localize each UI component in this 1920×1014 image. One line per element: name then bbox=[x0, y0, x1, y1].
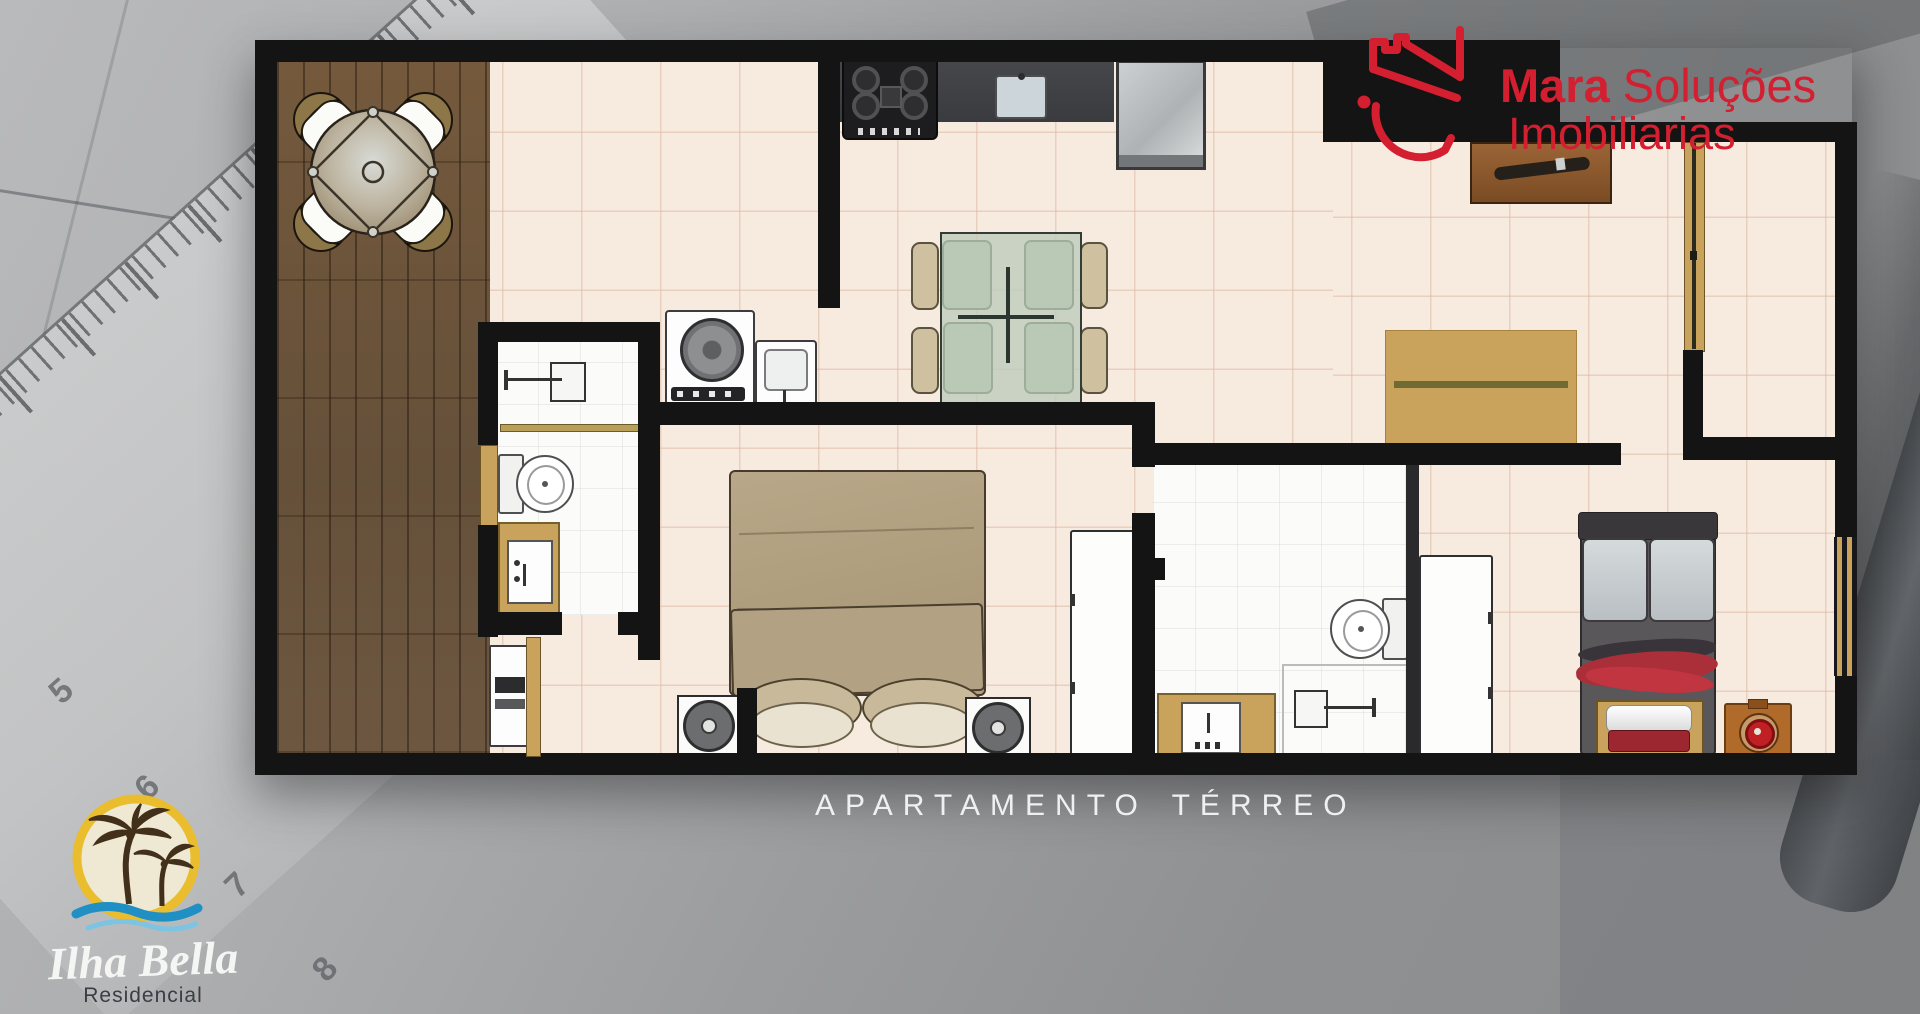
brand-word1: Soluções bbox=[1623, 59, 1816, 112]
folded-blanket-white bbox=[1606, 705, 1692, 733]
toilet-bowl bbox=[1330, 599, 1390, 659]
ilha-bella-subtitle: Residencial bbox=[8, 984, 278, 1008]
shower-arm-cap bbox=[1372, 698, 1376, 717]
faucet-icon bbox=[1207, 713, 1210, 733]
wardrobe-handle bbox=[1070, 682, 1075, 694]
plan-caption: APARTAMENTO TÉRREO bbox=[815, 789, 1357, 823]
wardrobe-handle bbox=[1070, 594, 1075, 606]
shower-head-icon bbox=[1294, 690, 1328, 728]
screenshot-root: 5 6 7 8 bbox=[0, 0, 1920, 1014]
faucet-icon bbox=[514, 576, 520, 582]
toilet-1 bbox=[498, 452, 574, 514]
nightstand-lamp bbox=[683, 700, 735, 752]
fridge-base bbox=[1119, 155, 1203, 167]
burner bbox=[900, 92, 928, 120]
shower-head-icon bbox=[550, 362, 586, 402]
tub-basin bbox=[764, 349, 808, 391]
hall-door-knob bbox=[1690, 251, 1697, 260]
brand-word2: Imobiliarias bbox=[1508, 108, 1736, 160]
mara-house-icon bbox=[1348, 22, 1498, 162]
window-pane bbox=[1837, 537, 1842, 676]
patio-table-set bbox=[285, 84, 461, 260]
rug-stripe bbox=[1394, 381, 1568, 388]
vanity-1 bbox=[498, 522, 560, 618]
bedside-chest bbox=[1724, 703, 1792, 759]
brand-name-line: Mara Soluções bbox=[1500, 58, 1816, 113]
wall-bedroom2-top bbox=[1697, 437, 1835, 460]
photo-shadow bbox=[1560, 760, 1920, 1014]
vanity-sink bbox=[507, 540, 553, 604]
ruler-digit: 8 bbox=[305, 949, 347, 989]
wall-bedroom1-step bbox=[1132, 425, 1155, 467]
shower-partition bbox=[500, 424, 640, 432]
wall-bedroom1-top bbox=[650, 402, 1155, 425]
shower-arm bbox=[1324, 706, 1374, 709]
knob-strip bbox=[858, 128, 920, 135]
washing-machine bbox=[665, 310, 755, 406]
shower-2 bbox=[1282, 664, 1408, 756]
folded-blanket-red bbox=[1608, 730, 1690, 752]
brand-name: Mara bbox=[1500, 59, 1610, 112]
single-bed bbox=[1578, 512, 1718, 757]
duvet-crease bbox=[739, 527, 974, 535]
bed-pillow bbox=[1582, 538, 1648, 622]
toilet-bowl bbox=[516, 455, 574, 513]
cooktop bbox=[842, 56, 938, 140]
wall-bath1-bottom-b bbox=[618, 612, 660, 635]
window-right bbox=[1834, 537, 1857, 676]
laundry-tub bbox=[755, 340, 817, 406]
table-cross-h bbox=[958, 315, 1054, 319]
chest-notch bbox=[1748, 699, 1768, 709]
burner-grate bbox=[880, 86, 902, 108]
bed-headboard bbox=[1578, 512, 1718, 540]
vanity-2 bbox=[1157, 693, 1276, 759]
wall-right-upper bbox=[1835, 122, 1857, 537]
wall-bath1-top bbox=[478, 322, 660, 342]
foot-bench bbox=[1596, 700, 1704, 759]
ilha-bella-title: Ilha Bella bbox=[7, 929, 279, 991]
shower-arm-cap bbox=[504, 370, 508, 390]
bed-pillow bbox=[870, 702, 974, 748]
dining-chair-arm bbox=[911, 242, 939, 310]
rug bbox=[1385, 330, 1577, 444]
entry-door bbox=[526, 637, 541, 757]
wall-corridor-stub bbox=[737, 688, 757, 753]
shower-1 bbox=[500, 358, 640, 408]
lamp-dot bbox=[1754, 728, 1761, 735]
wall-bath1-bottom-a bbox=[478, 612, 562, 635]
burner bbox=[852, 66, 880, 94]
nightstand-lamp bbox=[972, 702, 1024, 754]
faucet-icon bbox=[514, 560, 520, 566]
dining-chair-arm bbox=[911, 327, 939, 394]
ilha-bella-logo: Ilha Bella Residencial bbox=[8, 788, 278, 1014]
tub-drain bbox=[783, 390, 786, 402]
bed-pillow bbox=[1649, 538, 1715, 622]
refrigerator bbox=[1116, 60, 1206, 170]
washer-drum bbox=[680, 318, 744, 382]
wall-hall-divider bbox=[1683, 350, 1703, 460]
ilha-bella-icon bbox=[56, 788, 216, 940]
window-pane bbox=[1847, 537, 1852, 676]
wall-bath1-right bbox=[638, 322, 660, 660]
wardrobe-2 bbox=[1419, 555, 1493, 759]
wardrobe-1 bbox=[1070, 530, 1137, 757]
washer-band bbox=[495, 677, 525, 693]
kitchen-sink bbox=[995, 75, 1047, 119]
wall-left bbox=[255, 40, 277, 775]
wall-bath2-top bbox=[1155, 443, 1621, 465]
bed-pillow bbox=[750, 702, 854, 748]
dining-chair-arm bbox=[1080, 242, 1108, 309]
dining-table bbox=[940, 232, 1082, 406]
hall-door bbox=[1684, 142, 1705, 352]
toilet-2 bbox=[1324, 596, 1408, 658]
wall-bath2-left bbox=[1132, 513, 1155, 753]
mara-logo: Mara Soluções Imobiliarias bbox=[1348, 16, 1908, 166]
wardrobe-handle bbox=[1488, 687, 1493, 699]
wardrobe-handle bbox=[1488, 612, 1493, 624]
wall-right-lower bbox=[1835, 676, 1857, 775]
burner bbox=[900, 66, 928, 94]
shower-arm bbox=[506, 378, 562, 381]
lamp-red bbox=[1745, 719, 1775, 749]
nightstand-left bbox=[677, 695, 741, 757]
faucet-icon bbox=[523, 564, 526, 586]
wall-bath2-wardrobe bbox=[1406, 465, 1419, 753]
bath1-door bbox=[480, 445, 498, 527]
washer-controls bbox=[671, 387, 745, 401]
dining-chair-arm bbox=[1080, 327, 1108, 394]
nightstand-right bbox=[965, 697, 1031, 759]
hall-door-line bbox=[1692, 143, 1696, 349]
faucet-dot bbox=[1018, 73, 1025, 80]
wall-bath1-left-upper bbox=[478, 342, 498, 445]
wall-bottom bbox=[255, 753, 1857, 775]
burner bbox=[852, 92, 880, 120]
washer-band bbox=[495, 699, 525, 709]
wall-kitchen-divider bbox=[818, 62, 840, 308]
faucet-icon bbox=[1195, 742, 1223, 749]
